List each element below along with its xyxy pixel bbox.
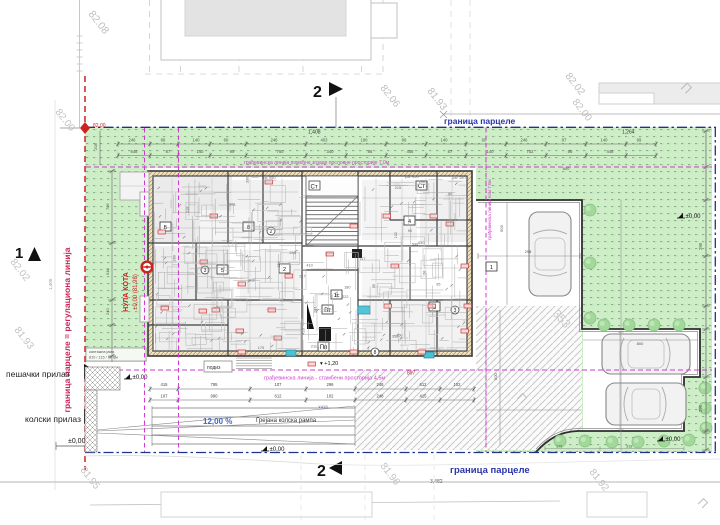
svg-text:1,264: 1,264 (622, 130, 635, 136)
svg-text:грађевинска линија - стамбени: грађевинска линија - стамбени просторија… (264, 376, 385, 382)
svg-text:540: 540 (105, 268, 110, 275)
svg-text:140: 140 (193, 138, 201, 143)
svg-text:99: 99 (230, 149, 235, 154)
svg-text:140: 140 (601, 138, 609, 143)
svg-text:86: 86 (568, 149, 573, 154)
svg-text:410: 410 (301, 328, 305, 334)
svg-text:87: 87 (448, 149, 453, 154)
svg-text:1: 1 (15, 245, 23, 262)
svg-text:граница парцеле: граница парцеле (450, 465, 530, 476)
svg-text:415: 415 (420, 394, 428, 399)
svg-text:260: 260 (173, 255, 177, 261)
svg-text:86: 86 (448, 192, 452, 196)
svg-text:415: 415 (161, 382, 169, 387)
svg-text:каптажна јама: каптажна јама (89, 350, 115, 354)
svg-text:2: 2 (317, 463, 326, 480)
svg-text:448: 448 (607, 149, 615, 154)
svg-text:218: 218 (186, 206, 190, 212)
svg-text:НУЛА КОТА: НУЛА КОТА (123, 272, 130, 312)
svg-text:340: 340 (229, 203, 235, 207)
svg-text:448: 448 (407, 149, 415, 154)
svg-text:102: 102 (394, 232, 398, 238)
svg-text:подиз: подиз (207, 365, 221, 371)
svg-text:107: 107 (161, 394, 169, 399)
svg-text:211: 211 (311, 345, 317, 349)
svg-text:246: 246 (521, 138, 529, 143)
svg-text:246: 246 (271, 138, 279, 143)
svg-text:612: 612 (420, 382, 428, 387)
svg-text:296: 296 (327, 382, 335, 387)
svg-text:90: 90 (408, 229, 412, 233)
svg-text:86: 86 (161, 138, 166, 143)
svg-text:1,408: 1,408 (308, 130, 321, 136)
svg-text:150: 150 (277, 261, 281, 267)
svg-text:215: 215 (395, 186, 401, 190)
svg-text:Грејана колска рампа: Грејана колска рампа (256, 418, 317, 424)
svg-text:503: 503 (499, 225, 504, 232)
svg-text:117: 117 (359, 257, 365, 261)
svg-text:403: 403 (321, 138, 329, 143)
svg-text:107: 107 (275, 382, 283, 387)
svg-text:95: 95 (436, 283, 440, 287)
svg-text:87: 87 (166, 149, 171, 154)
svg-text:Ст: Ст (418, 184, 425, 190)
svg-text:298: 298 (525, 249, 532, 254)
svg-text:±0,00: ±0,00 (68, 438, 86, 445)
svg-text:330: 330 (246, 177, 250, 183)
svg-text:граница парцеле = регулациона: граница парцеле = регулациона линија (62, 247, 72, 412)
svg-text:760: 760 (277, 149, 285, 154)
svg-text:99: 99 (637, 138, 642, 143)
svg-text:12,00 %: 12,00 % (203, 417, 232, 426)
svg-text:граница парцеле: граница парцеле (444, 116, 516, 126)
svg-text:705: 705 (105, 203, 110, 210)
svg-text:175: 175 (258, 346, 264, 350)
svg-text:140: 140 (197, 149, 205, 154)
svg-text:217: 217 (299, 275, 305, 279)
svg-text:par 950: par 950 (405, 174, 419, 179)
svg-text:612: 612 (275, 394, 283, 399)
svg-text:Пп: Пп (320, 345, 328, 351)
svg-text:82.00: 82.00 (93, 123, 106, 129)
svg-text:990: 990 (211, 394, 219, 399)
svg-text:897: 897 (407, 371, 416, 377)
svg-text:1: 1 (490, 265, 493, 271)
svg-text:352: 352 (392, 334, 398, 338)
svg-text:par 160: par 160 (452, 175, 466, 180)
svg-text:87: 87 (562, 138, 567, 143)
svg-text:630: 630 (418, 241, 424, 245)
svg-text:298: 298 (698, 242, 703, 250)
svg-text:752: 752 (527, 149, 535, 154)
svg-text:500: 500 (493, 373, 498, 380)
svg-text:102: 102 (454, 382, 462, 387)
svg-text:175: 175 (556, 445, 562, 449)
svg-text:60: 60 (224, 138, 229, 143)
svg-text:Ст: Ст (311, 185, 318, 191)
svg-text:±0,00: ±0,00 (686, 214, 702, 220)
svg-text:248: 248 (377, 394, 385, 399)
svg-text:2: 2 (283, 267, 286, 273)
svg-text:318: 318 (626, 445, 632, 449)
svg-text:Вт: Вт (324, 308, 331, 314)
svg-text:колски прилаз: колски прилаз (25, 414, 81, 424)
svg-text:248: 248 (289, 251, 295, 255)
svg-text:8: 8 (374, 350, 377, 356)
svg-text:3: 3 (454, 308, 457, 314)
svg-text:340: 340 (327, 149, 335, 154)
svg-text:1,400: 1,400 (48, 278, 53, 290)
svg-text:433: 433 (335, 291, 339, 297)
svg-text:±0,00: ±0,00 (270, 447, 286, 453)
svg-text:648: 648 (131, 149, 139, 154)
svg-text:102: 102 (327, 394, 335, 399)
svg-text:пешачки прилаз: пешачки прилаз (6, 369, 70, 379)
svg-text:грађевинска линија пом 7,0м: грађевинска линија пом 7,0м (487, 179, 492, 240)
svg-text:±0,00: ±0,00 (666, 437, 682, 443)
svg-text:296: 296 (698, 404, 703, 412)
svg-text:грађевинска линија помоћне згр: грађевинска линија помоћне зграде послов… (244, 160, 390, 166)
svg-text:140: 140 (487, 149, 495, 154)
svg-text:86: 86 (368, 149, 373, 154)
svg-text:2: 2 (313, 84, 322, 101)
svg-text:180: 180 (344, 286, 350, 290)
svg-text:240: 240 (105, 308, 110, 315)
svg-text:208: 208 (93, 143, 98, 150)
svg-text:86: 86 (402, 138, 407, 143)
svg-text:99: 99 (372, 284, 376, 288)
svg-text:222: 222 (342, 295, 348, 299)
svg-text:795: 795 (211, 382, 219, 387)
svg-text:800: 800 (637, 341, 644, 346)
svg-text:140: 140 (441, 138, 449, 143)
svg-text:190: 190 (361, 138, 369, 143)
svg-text:±0,00 (81,98): ±0,00 (81,98) (133, 274, 139, 310)
svg-text:±0,00: ±0,00 (133, 375, 149, 381)
svg-text:246: 246 (129, 138, 137, 143)
svg-text:190: 190 (419, 180, 425, 184)
svg-text:287: 287 (314, 307, 318, 313)
svg-text:par 950: par 950 (262, 175, 276, 180)
svg-text:∨419: ∨419 (318, 404, 328, 409)
svg-text:▾ +1,20: ▾ +1,20 (320, 361, 338, 367)
svg-text:410: 410 (306, 264, 312, 268)
svg-text:248: 248 (377, 382, 385, 387)
